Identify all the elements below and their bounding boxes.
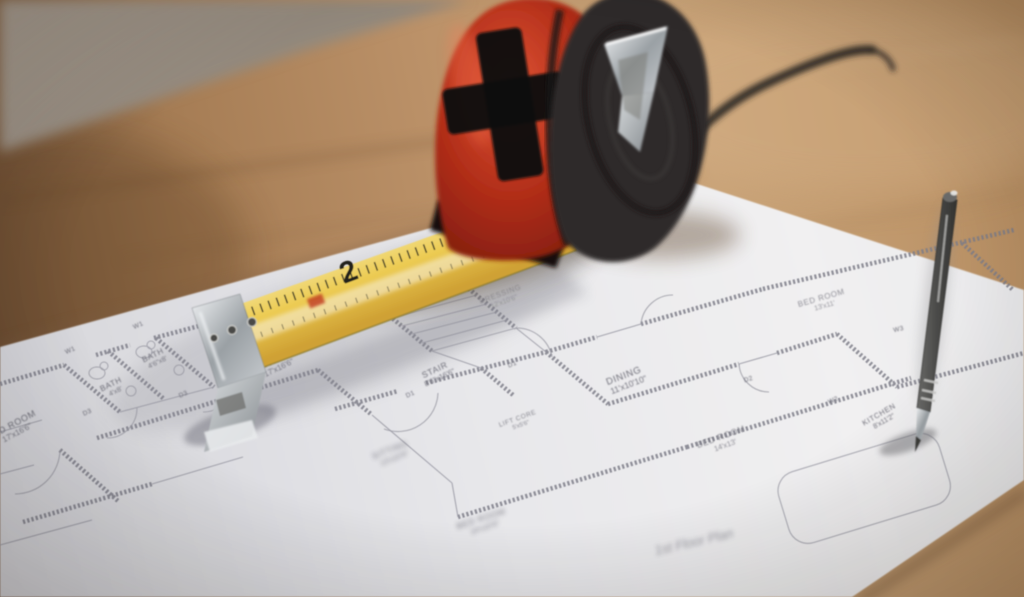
- scene-canvas: BATH 4'x8' BATH 4'6"x8' BED ROOM 17'x16'…: [0, 0, 1024, 597]
- photo-scene: BATH 4'x8' BATH 4'6"x8' BED ROOM 17'x16'…: [0, 0, 1024, 597]
- vignette-overlay: [0, 0, 1024, 597]
